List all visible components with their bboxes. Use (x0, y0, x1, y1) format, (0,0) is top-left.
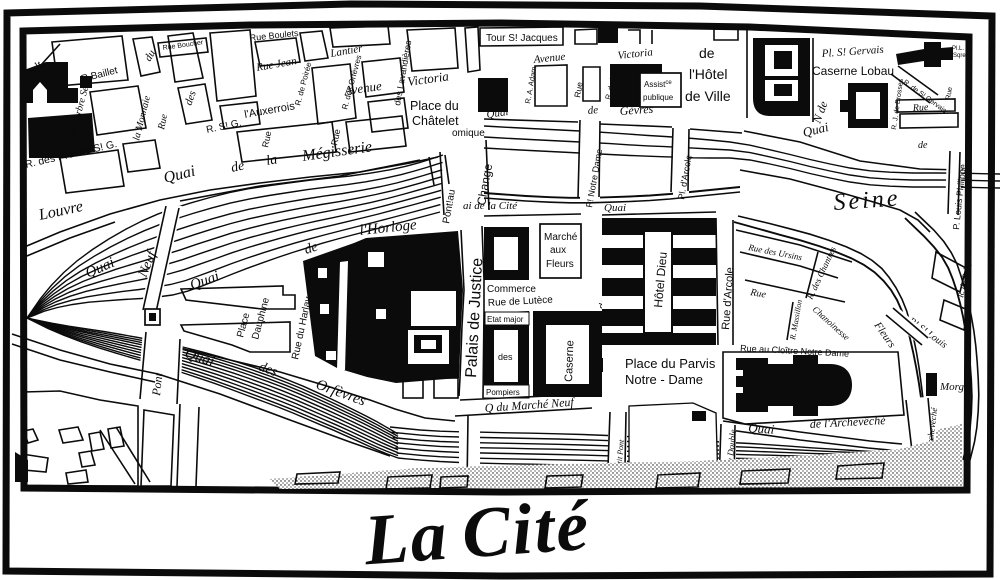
svg-text:de: de (587, 104, 599, 117)
svg-text:publique: publique (643, 93, 674, 102)
svg-text:Marché: Marché (544, 232, 578, 243)
svg-text:Seine: Seine (833, 185, 902, 216)
svg-text:de: de (699, 45, 715, 61)
svg-text:Tour S! Jacques: Tour S! Jacques (486, 33, 558, 44)
svg-text:aux: aux (550, 245, 566, 256)
svg-text:Rue: Rue (911, 102, 929, 114)
svg-text:Morg: Morg (939, 381, 965, 393)
svg-text:Quai: Quai (748, 420, 775, 437)
svg-text:Fleurs: Fleurs (546, 259, 574, 270)
svg-text:Quai: Quai (604, 202, 626, 214)
svg-text:LaCité: LaCité (361, 485, 593, 580)
svg-text:Place du: Place du (410, 99, 459, 113)
svg-text:ai de la Cité: ai de la Cité (463, 200, 518, 212)
svg-text:l'Hôtel: l'Hôtel (689, 66, 727, 82)
svg-text:Notre - Dame: Notre - Dame (625, 372, 703, 387)
svg-text:Sqre: Sqre (953, 53, 966, 59)
svg-text:omique: omique (452, 128, 485, 139)
svg-text:Pompiers: Pompiers (486, 388, 520, 397)
svg-text:Pl.L.: Pl.L. (952, 46, 964, 52)
svg-text:Gèvres: Gèvres (619, 102, 654, 118)
svg-text:de Ville: de Ville (685, 88, 731, 104)
svg-text:des: des (498, 352, 513, 362)
svg-text:Châtelet: Châtelet (412, 114, 459, 128)
svg-text:Caserne: Caserne (563, 340, 576, 382)
svg-text:de: de (918, 140, 928, 151)
svg-text:Place du Parvis: Place du Parvis (625, 356, 716, 371)
svg-text:Caserne Lobau: Caserne Lobau (812, 64, 894, 78)
svg-text:Commerce: Commerce (487, 284, 536, 295)
svg-text:Etat major: Etat major (487, 315, 524, 324)
